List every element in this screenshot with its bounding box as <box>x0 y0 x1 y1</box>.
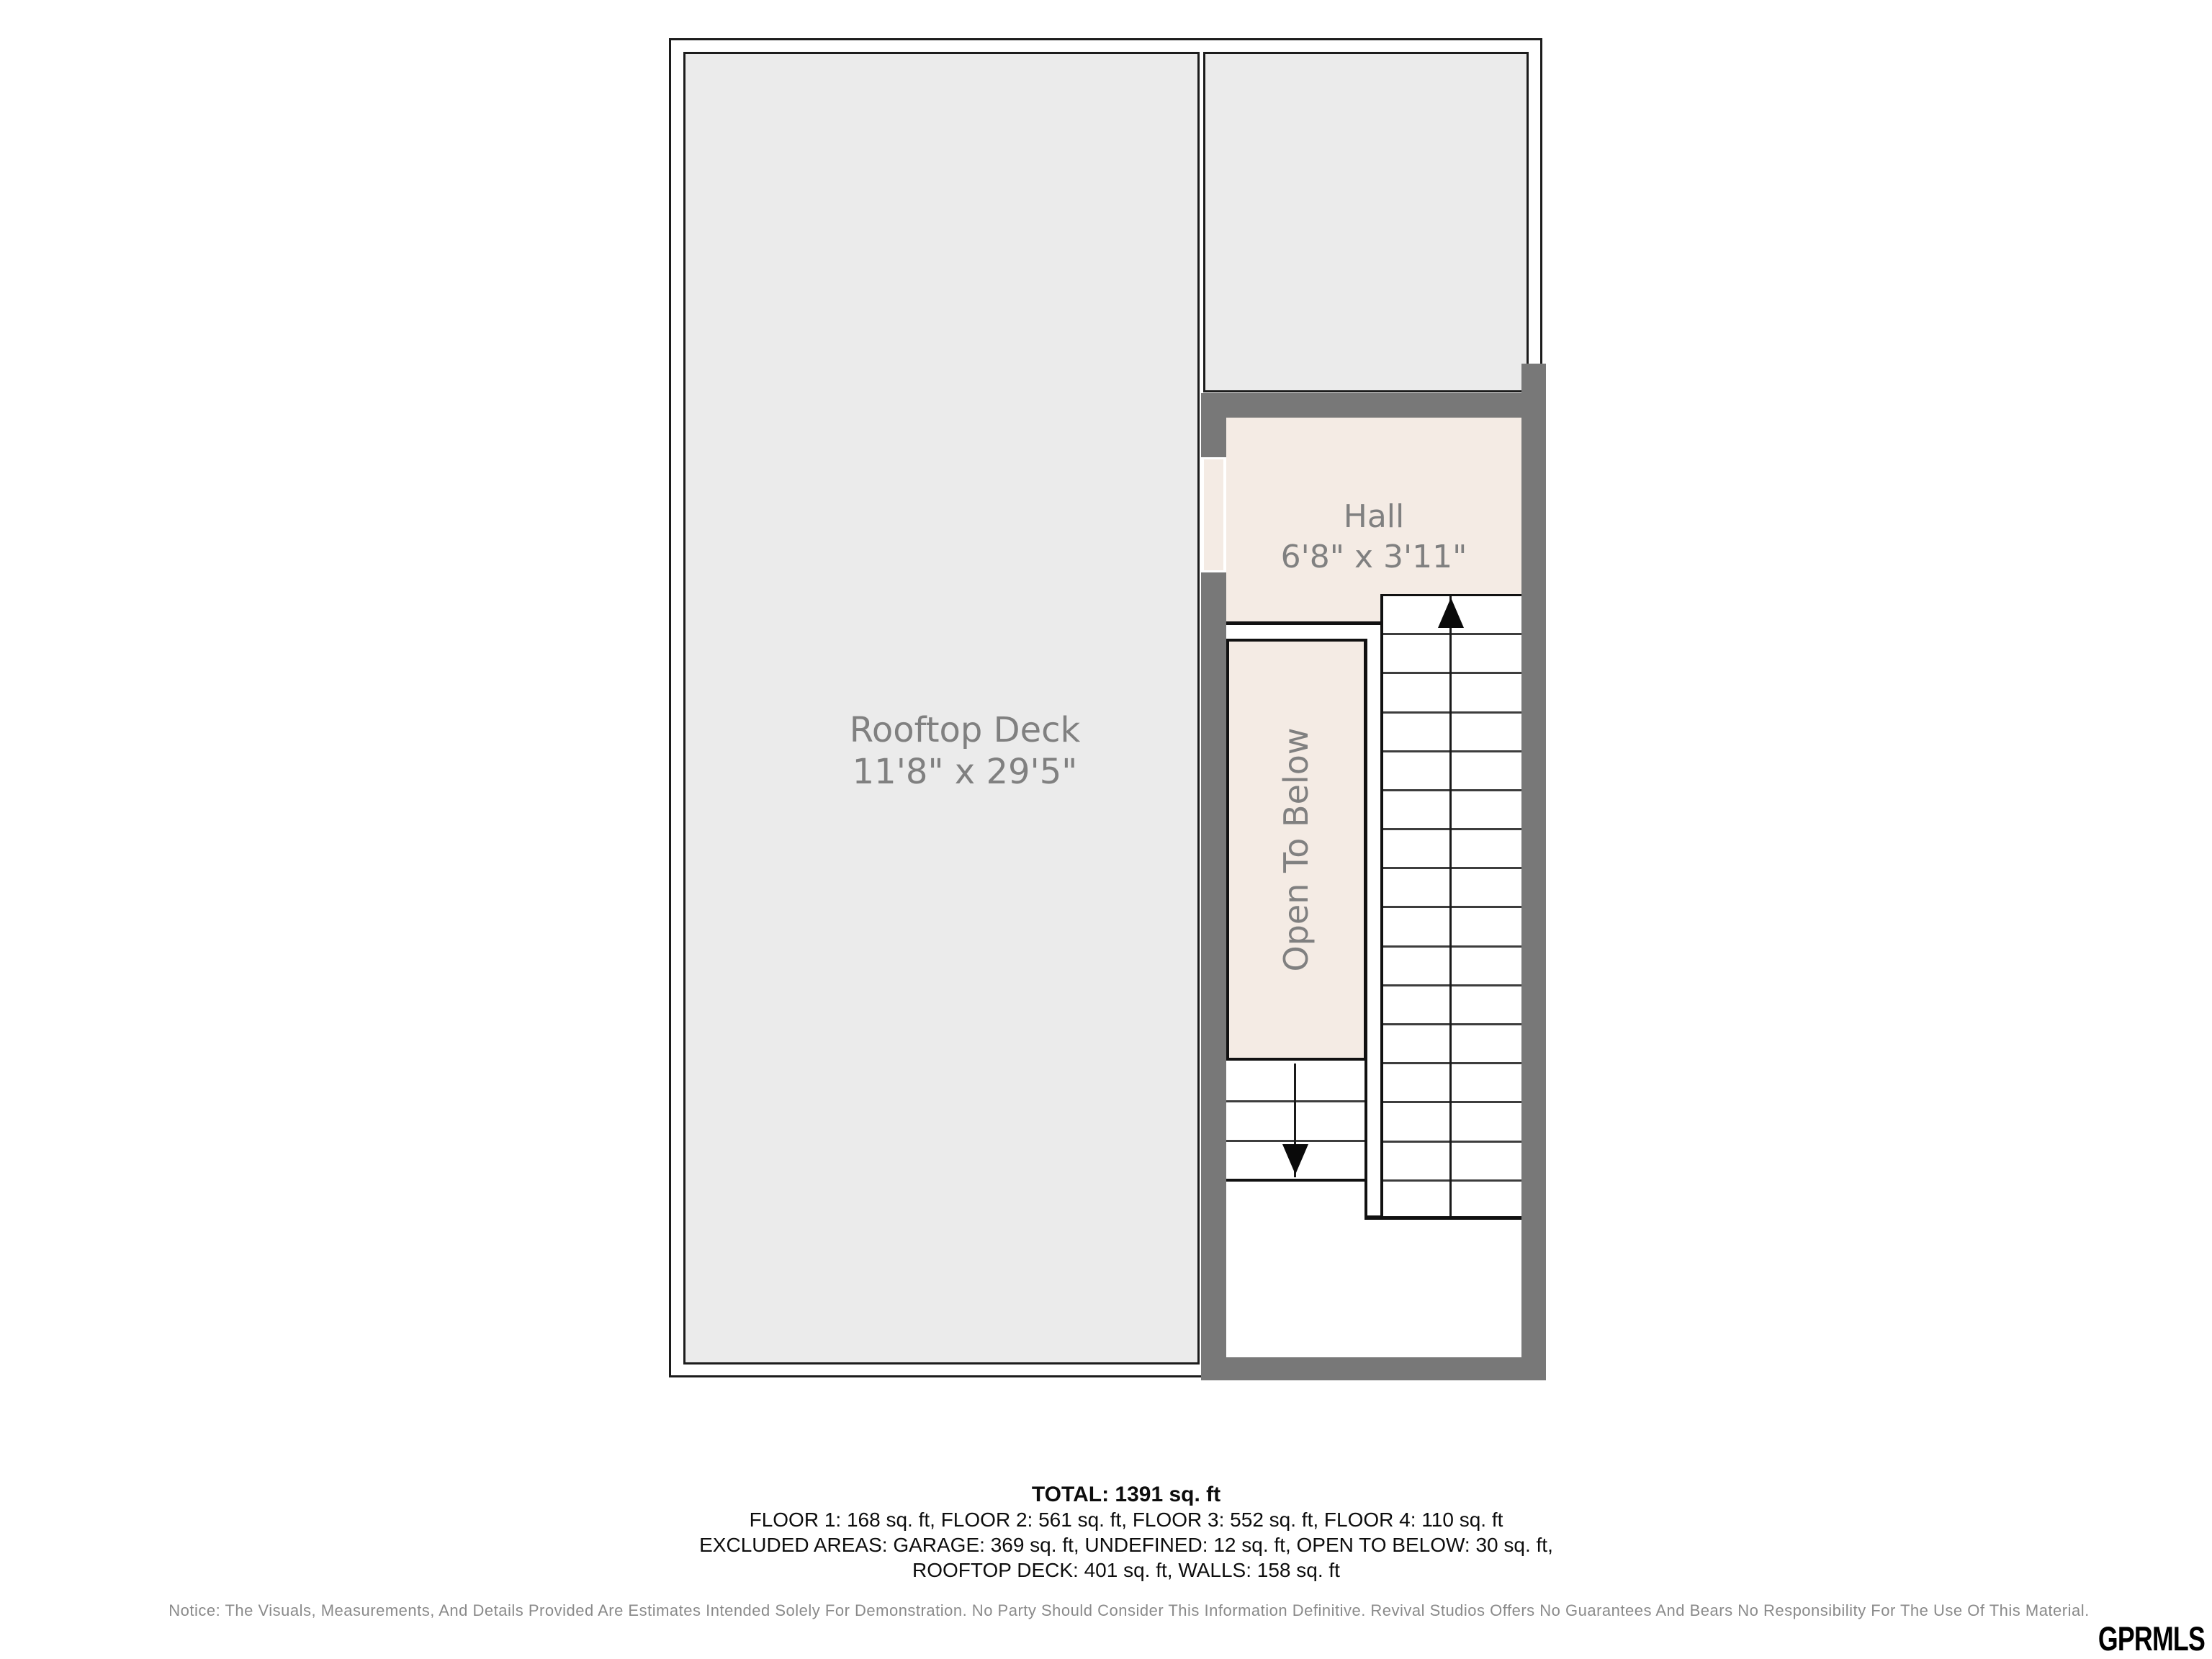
stair-tread <box>1383 1023 1521 1025</box>
stair-tread <box>1383 672 1521 674</box>
excluded-areas-line2: ROOFTOP DECK: 401 sq. ft, WALLS: 158 sq.… <box>40 1557 2212 1583</box>
rooftop-deck-label: Rooftop Deck 11'8" x 29'5" <box>749 709 1181 793</box>
floor-areas: FLOOR 1: 168 sq. ft, FLOOR 2: 561 sq. ft… <box>40 1507 2212 1532</box>
stair-divider <box>1364 639 1380 1220</box>
area-summary: TOTAL: 1391 sq. ft FLOOR 1: 168 sq. ft, … <box>40 1482 2212 1583</box>
stair-tread <box>1383 828 1521 830</box>
hall-label: Hall 6'8" x 3'11" <box>1226 497 1521 577</box>
excluded-areas-line1: EXCLUDED AREAS: GARAGE: 369 sq. ft, UNDE… <box>40 1532 2212 1557</box>
open-to-below-label: Open To Below <box>1277 728 1316 972</box>
stair-tread <box>1383 750 1521 752</box>
stair-tread <box>1383 984 1521 986</box>
stair-tread <box>1383 711 1521 714</box>
wall-right <box>1521 364 1546 1380</box>
rooftop-deck-dims: 11'8" x 29'5" <box>749 751 1181 793</box>
door-leaf <box>1204 459 1223 570</box>
stair-tread <box>1383 789 1521 791</box>
stair-tread <box>1383 1179 1521 1182</box>
rooftop-deck-area <box>683 52 1200 1364</box>
stair-tread <box>1383 1062 1521 1064</box>
rooftop-deck-name: Rooftop Deck <box>749 709 1181 751</box>
gprmls-logo: GPRMLS <box>2098 1619 2205 1658</box>
stair-tread <box>1383 1101 1521 1103</box>
wall-left-upper <box>1201 393 1226 457</box>
hall-room-extension <box>1226 594 1381 625</box>
disclaimer-notice: Notice: The Visuals, Measurements, And D… <box>46 1601 2212 1620</box>
upper-roof-area <box>1203 52 1529 392</box>
wall-left-lower <box>1201 572 1226 1380</box>
wall-top <box>1201 393 1521 418</box>
stair-down-arrow <box>1282 1144 1308 1174</box>
wall-bottom <box>1201 1357 1546 1380</box>
stair-tread <box>1383 633 1521 635</box>
stair-up-arrow <box>1438 598 1464 628</box>
total-area: TOTAL: 1391 sq. ft <box>40 1482 2212 1507</box>
stair-direction-line <box>1449 596 1452 1216</box>
stair-tread <box>1383 867 1521 869</box>
hall-name: Hall <box>1226 497 1521 537</box>
stair-tread <box>1383 1141 1521 1143</box>
stair-tread <box>1383 945 1521 948</box>
stair-tread <box>1383 906 1521 908</box>
hall-dims: 6'8" x 3'11" <box>1226 537 1521 577</box>
staircase-up <box>1380 594 1521 1220</box>
door-opening <box>1201 457 1226 572</box>
staircase-down <box>1226 1064 1364 1182</box>
